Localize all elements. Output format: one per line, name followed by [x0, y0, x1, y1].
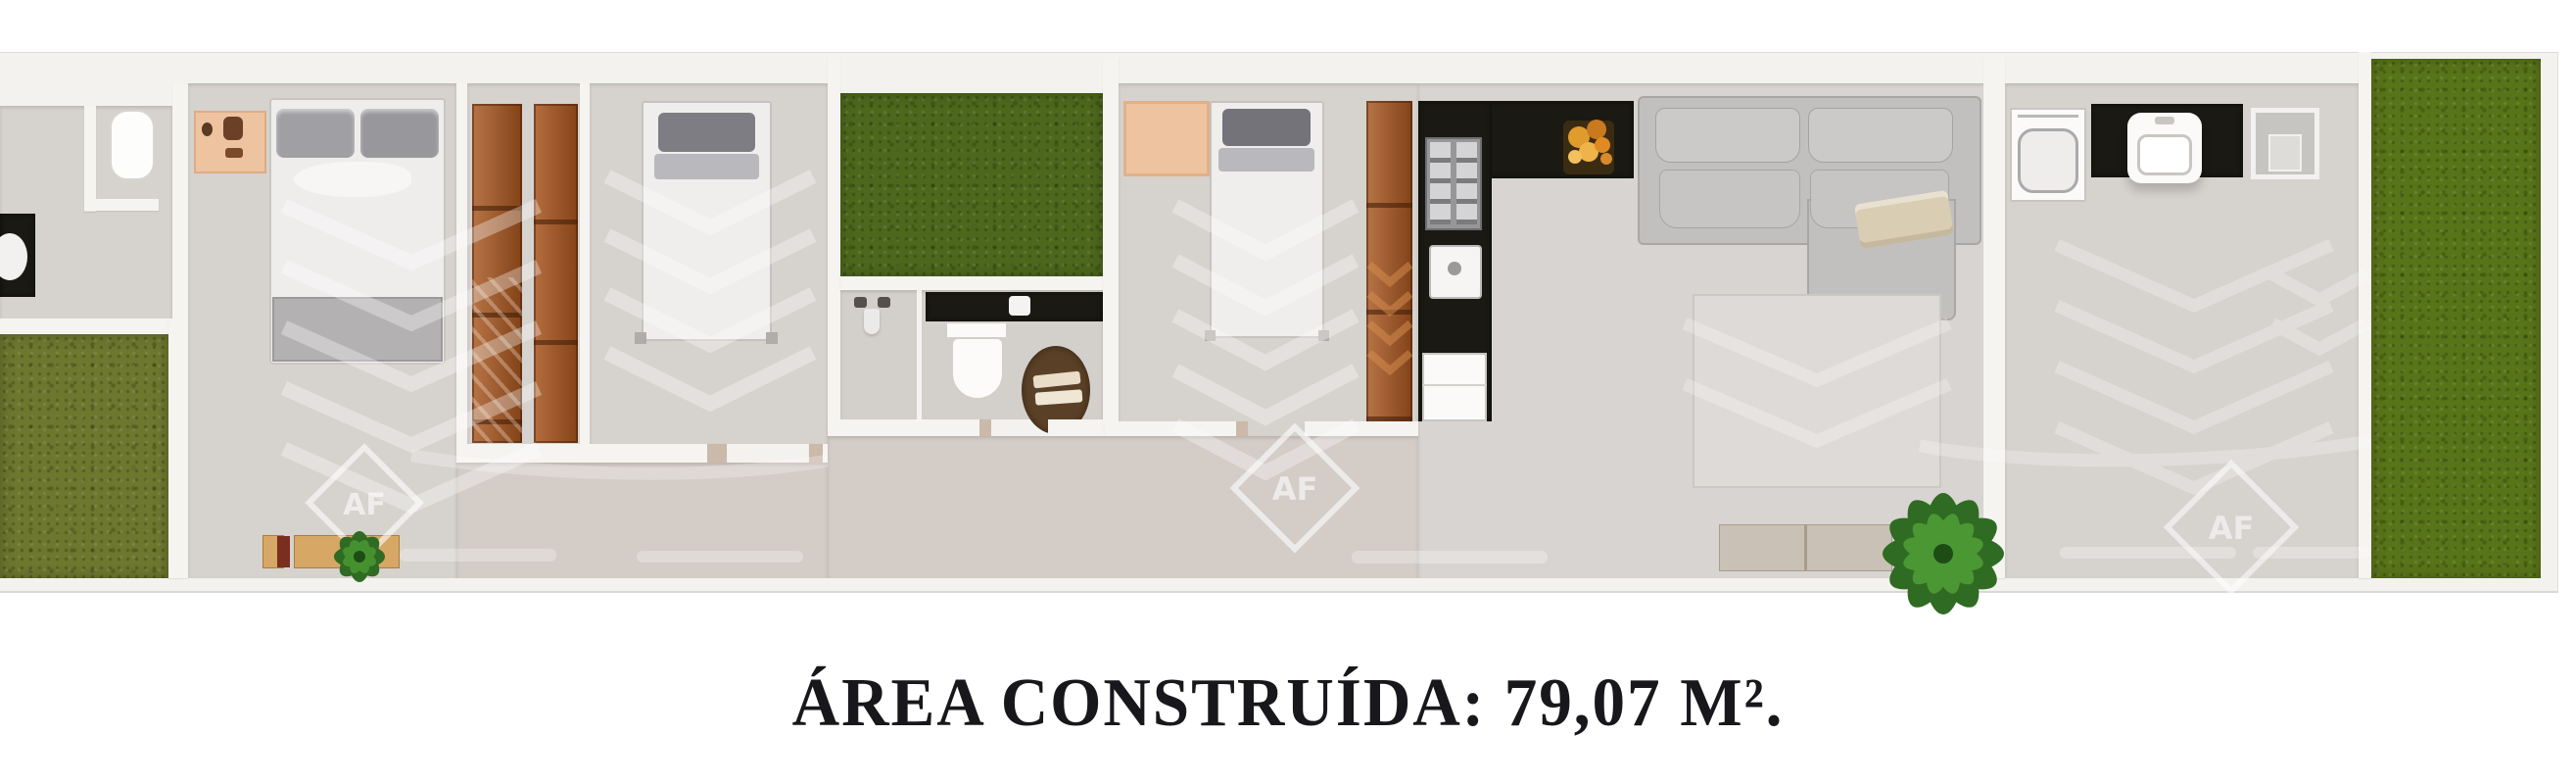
duvet-fold	[294, 162, 411, 197]
wall	[168, 318, 188, 578]
deck-slats-highlight	[472, 277, 522, 443]
wall	[580, 83, 590, 444]
pillow	[1222, 109, 1311, 146]
wall	[828, 57, 840, 441]
fridge-divider	[1422, 384, 1487, 386]
toilet-tank	[946, 322, 1007, 338]
door-jamb	[979, 419, 991, 436]
faucet-icon	[1448, 262, 1461, 275]
door-jamb	[707, 444, 727, 463]
sofa-back-cushion	[1655, 108, 1800, 163]
bed-blanket	[272, 297, 443, 362]
washer-panel-line	[2018, 115, 2078, 118]
pillow	[654, 154, 759, 179]
wall	[828, 419, 979, 436]
decor-box	[277, 536, 290, 567]
bed-post	[766, 332, 778, 344]
pillow	[276, 109, 355, 158]
stove-burners	[1456, 142, 1477, 224]
courtyard-grass	[840, 93, 1103, 276]
wall	[84, 199, 159, 211]
sofa-seat-cushion	[1659, 170, 1800, 228]
area-rug	[1693, 294, 1941, 488]
pillow	[658, 113, 755, 152]
shower-glass	[917, 290, 922, 419]
wall	[1103, 57, 1119, 441]
laundry-tub-basin	[2137, 134, 2192, 175]
door-jamb	[809, 444, 823, 463]
decor-icon	[225, 148, 243, 158]
decor-icon	[223, 117, 243, 140]
floor-plan	[0, 52, 2558, 593]
lamp-icon	[202, 122, 213, 136]
wardrobe-wood	[1366, 101, 1412, 424]
dresser	[1123, 101, 1210, 176]
bed-post	[1318, 330, 1329, 341]
flower-bowl	[1563, 121, 1614, 174]
caption: ÁREA CONSTRUÍDA: 79,07 M².	[52, 664, 2525, 743]
toilet	[952, 338, 1003, 399]
wall	[84, 106, 96, 212]
pillow	[360, 109, 439, 158]
wall	[1983, 57, 2005, 578]
bed-post	[635, 332, 646, 344]
left-yard-grass	[0, 334, 168, 578]
tv-bench-divider	[1804, 524, 1807, 571]
wall	[456, 444, 727, 463]
wood-deck-strip	[534, 104, 578, 443]
shower-head-icon	[864, 309, 880, 334]
wall	[1048, 419, 1105, 436]
washing-machine-lid	[2018, 128, 2078, 193]
corridor-floor	[456, 463, 828, 578]
tub-handle	[2155, 117, 2174, 124]
floor-plan-image: AF AF AF	[0, 0, 2576, 784]
stove-burners	[1430, 142, 1451, 224]
bathtub	[110, 110, 155, 180]
wall	[0, 318, 186, 334]
shower-knob-icon	[854, 297, 867, 308]
pillow	[1218, 148, 1314, 171]
wall	[840, 276, 1103, 290]
right-yard-grass	[2371, 59, 2541, 578]
wall	[456, 83, 467, 444]
utility-sink-basin	[2268, 134, 2302, 171]
hall-floor	[828, 436, 1418, 578]
bench	[294, 535, 400, 568]
fridge	[1422, 353, 1487, 421]
shower-knob-icon	[878, 297, 890, 308]
bed-post	[1205, 330, 1216, 341]
sofa-back-cushion	[1808, 108, 1953, 163]
vanity-sink	[1009, 296, 1030, 316]
wall	[2359, 52, 2371, 578]
